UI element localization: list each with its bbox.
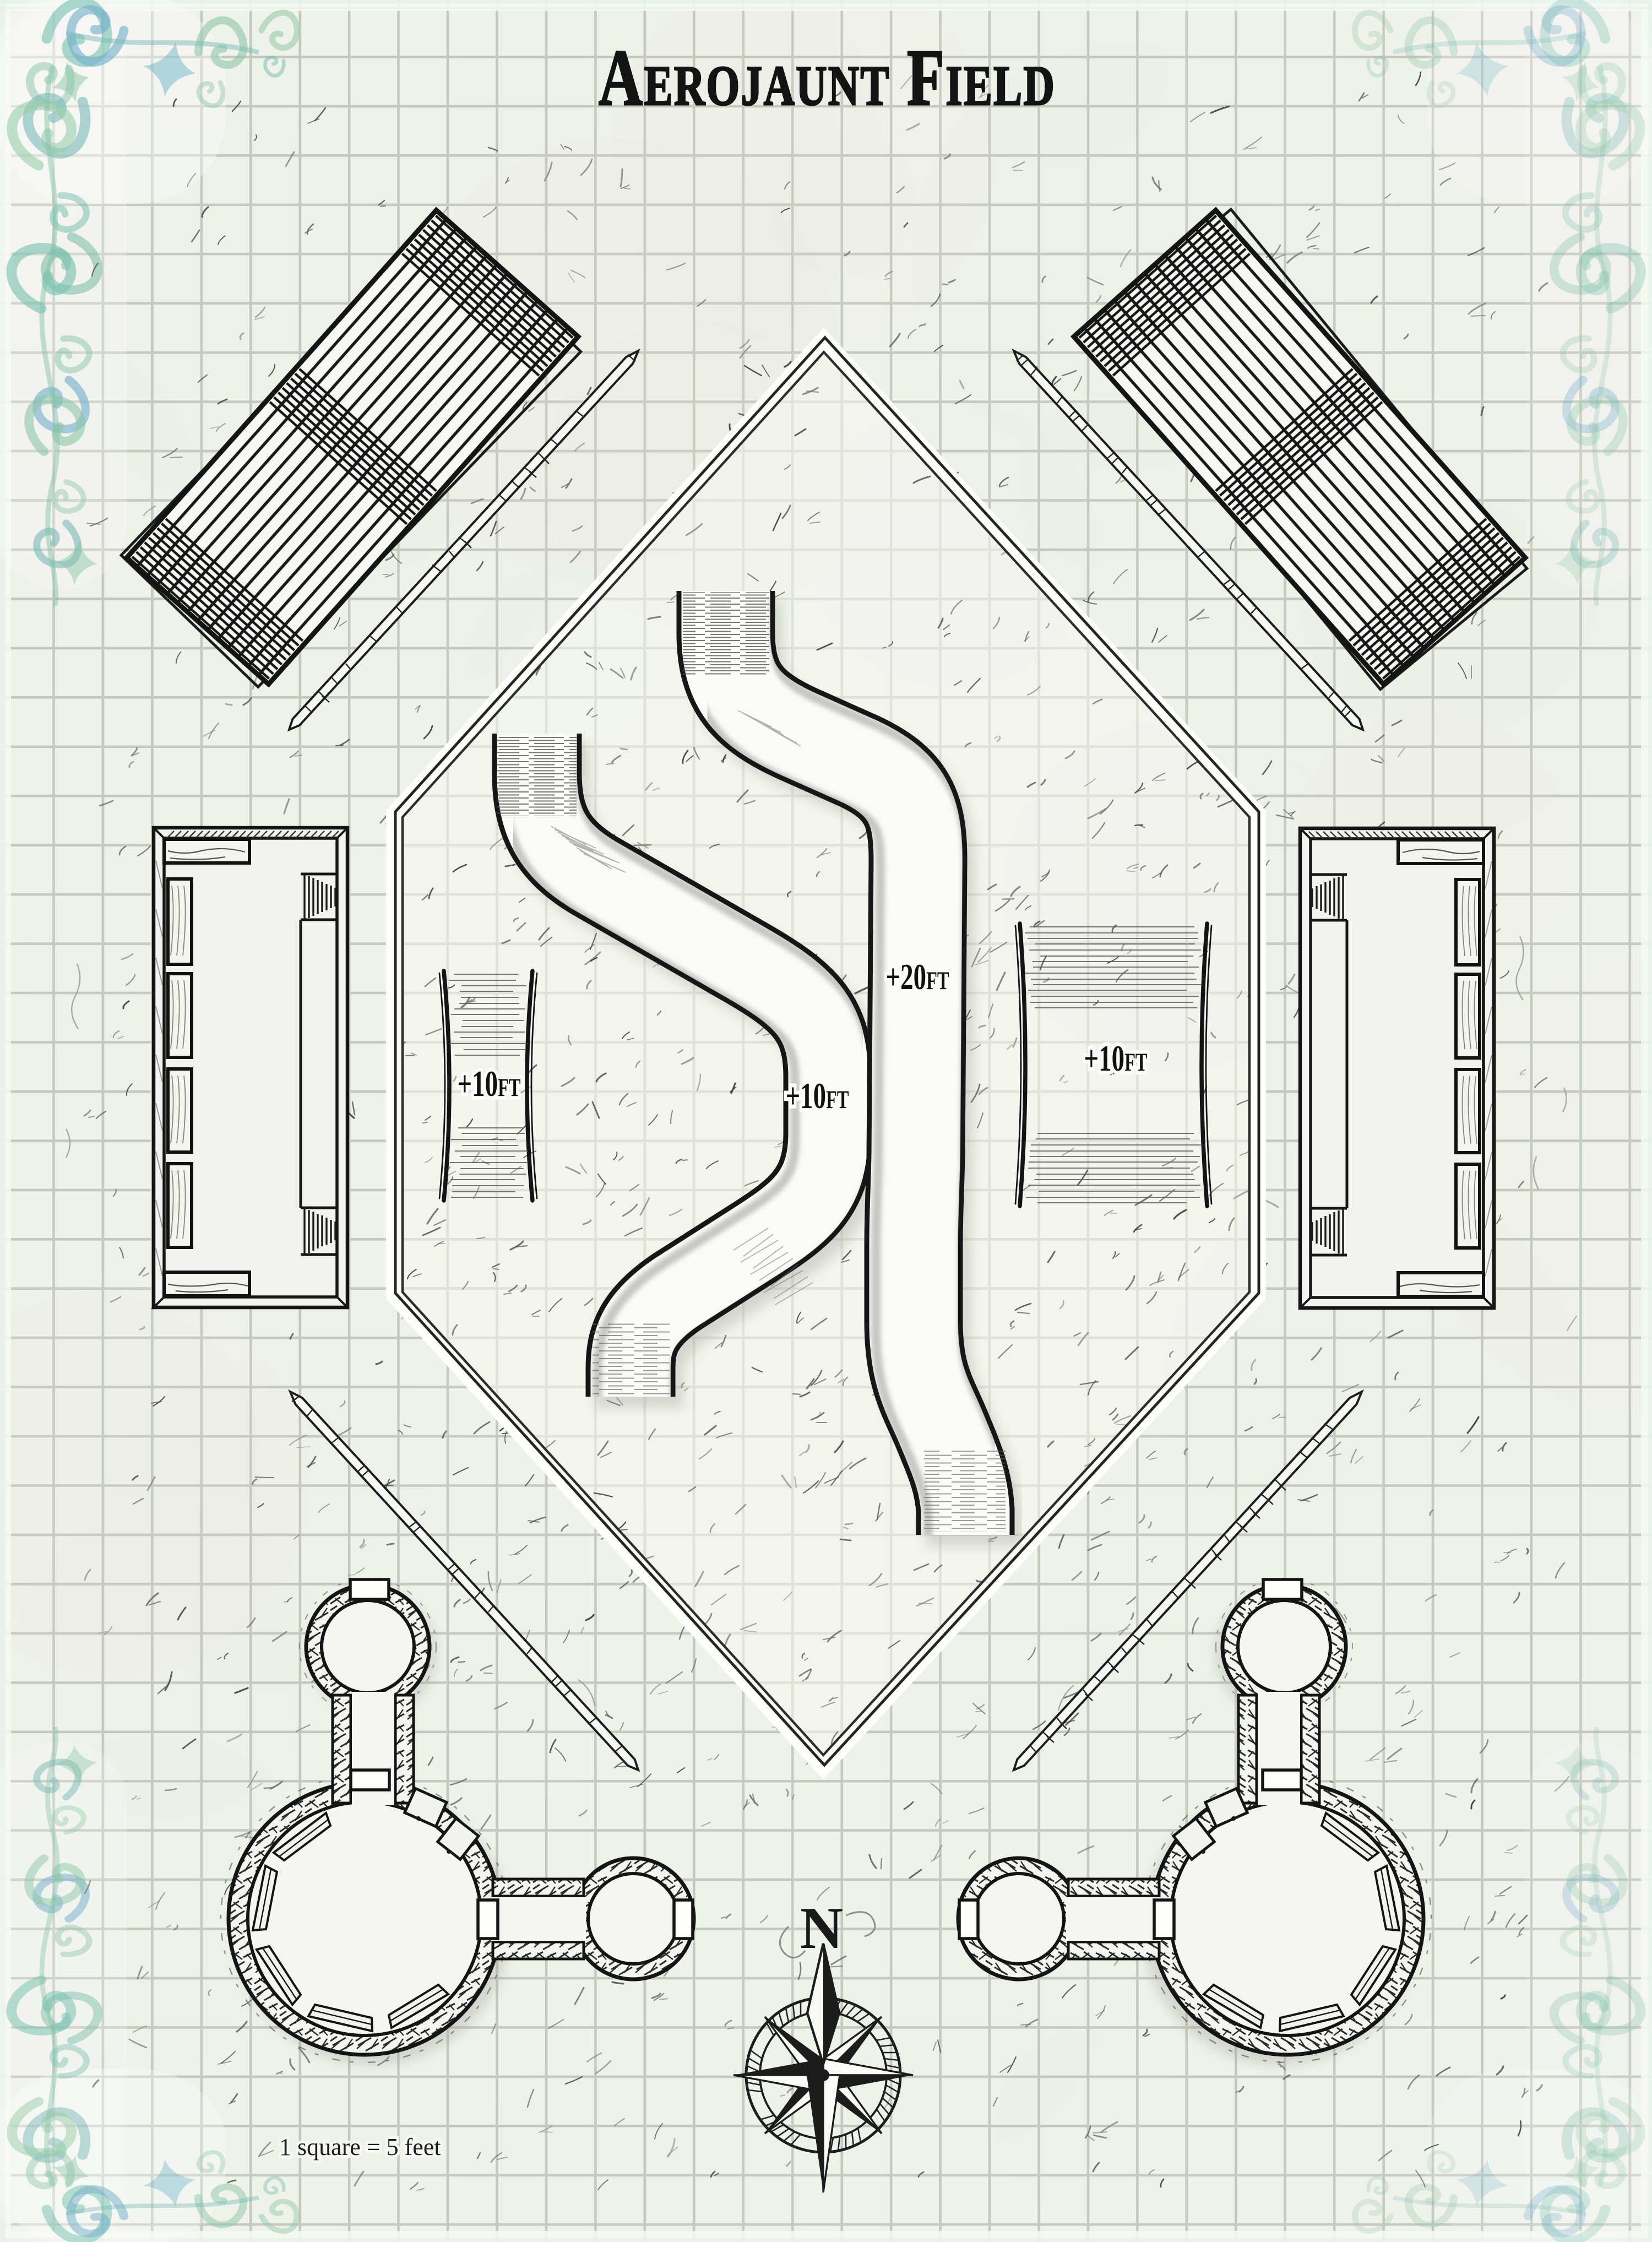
svg-text:Aerojaunt Field: Aerojaunt Field bbox=[599, 34, 1056, 123]
svg-text:+10ft: +10ft bbox=[785, 1075, 849, 1116]
svg-text:1 square = 5 feet: 1 square = 5 feet bbox=[279, 2134, 441, 2160]
svg-text:+10ft: +10ft bbox=[1084, 1038, 1147, 1079]
svg-text:+10ft: +10ft bbox=[457, 1063, 520, 1104]
svg-text:+20ft: +20ft bbox=[885, 956, 949, 997]
svg-text:N: N bbox=[800, 1896, 843, 1961]
